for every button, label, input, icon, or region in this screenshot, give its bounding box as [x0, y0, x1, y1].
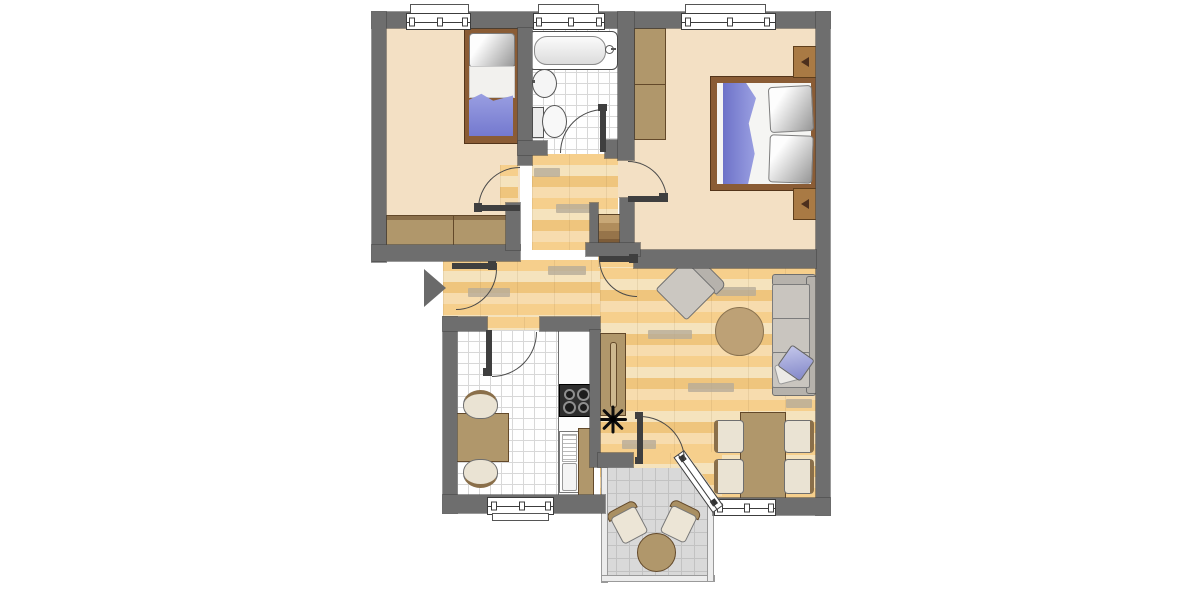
- wall-kitchen-top-right: [540, 317, 600, 331]
- bedroom-small-door-handle: [474, 203, 482, 212]
- wall-balcony-stub: [598, 453, 633, 467]
- bed-blanket: [469, 92, 513, 136]
- nightstand-with-lamp: [793, 188, 818, 220]
- kitchen-door-gap: [487, 317, 540, 331]
- balcony-door-hinge: [635, 457, 643, 464]
- burner: [577, 388, 590, 401]
- wall-bathroom-right: [618, 12, 634, 160]
- bed-pillow: [469, 33, 515, 68]
- single-bed: [464, 28, 520, 144]
- dining-chair: [714, 420, 744, 453]
- bed-pillow: [768, 134, 814, 184]
- parquet-plank: [786, 399, 812, 408]
- lamp-icon: [801, 57, 809, 67]
- wall-kitchen-left: [443, 317, 457, 513]
- nightstand-with-lamp: [793, 46, 818, 78]
- lamp-icon: [801, 199, 809, 209]
- balcony-table: [637, 533, 676, 572]
- bathroom-door-leaf: [600, 109, 606, 152]
- burner: [564, 389, 575, 400]
- parquet-plank: [688, 383, 734, 392]
- wall-exterior-right: [816, 12, 830, 515]
- kitchen-chair: [463, 459, 498, 488]
- window-sill: [492, 513, 549, 521]
- balcony-railing-left: [601, 467, 608, 583]
- window-bathroom: [533, 13, 605, 30]
- wall-entry: [372, 245, 520, 261]
- dining-table: [740, 412, 786, 500]
- dining-chair: [714, 459, 744, 494]
- bedroom-small-door-leaf: [478, 205, 520, 211]
- bed-pillow: [768, 85, 814, 133]
- balcony-door-leaf: [637, 416, 643, 461]
- parquet-plank: [534, 168, 560, 177]
- sofa-cushion: [772, 284, 810, 320]
- floor-plan: [0, 0, 1200, 600]
- washbasin: [532, 69, 557, 98]
- entrance-door-hinge: [488, 261, 496, 270]
- bed-sheet: [469, 66, 515, 98]
- parquet-plank: [548, 266, 586, 275]
- kitchen-door-handle: [483, 368, 492, 376]
- bedroom-main-door-handle: [659, 193, 668, 202]
- balcony-railing-bottom: [601, 575, 715, 582]
- sideboard: [600, 333, 626, 416]
- living-door-handle: [629, 254, 638, 263]
- stove: [559, 384, 593, 417]
- wardrobe-small-bedroom: [386, 215, 520, 248]
- window-bedroom-main: [681, 13, 776, 30]
- dining-chair: [784, 459, 814, 494]
- kitchen-sink: [559, 431, 580, 493]
- bathtub: [528, 31, 618, 70]
- wall-kitchen-top-left: [443, 317, 487, 331]
- burner: [578, 402, 589, 413]
- wall-exterior-left: [372, 12, 386, 262]
- window-living: [714, 499, 776, 516]
- wall-bathroom-bottom: [518, 141, 547, 155]
- bathroom-door-handle: [598, 104, 607, 111]
- plant: [599, 405, 627, 433]
- double-bed: [710, 76, 818, 191]
- wardrobe-main-bedroom: [634, 28, 666, 140]
- wall-living-top: [634, 250, 816, 268]
- window-bedroom-small: [406, 13, 471, 30]
- parquet-plank: [648, 330, 692, 339]
- kitchen-chair: [463, 390, 498, 419]
- burner: [563, 401, 576, 414]
- balcony-door-hinge: [635, 412, 643, 419]
- kitchen-table: [450, 413, 509, 462]
- wall-kitchen-right: [590, 330, 600, 467]
- dining-chair: [784, 420, 814, 453]
- round-rug: [715, 307, 764, 356]
- toilet-bowl: [542, 105, 567, 138]
- sofa: [770, 274, 816, 394]
- bathtub-faucet: [605, 45, 614, 54]
- entrance-arrow-icon: [424, 269, 446, 307]
- sideboard-handle: [610, 342, 617, 408]
